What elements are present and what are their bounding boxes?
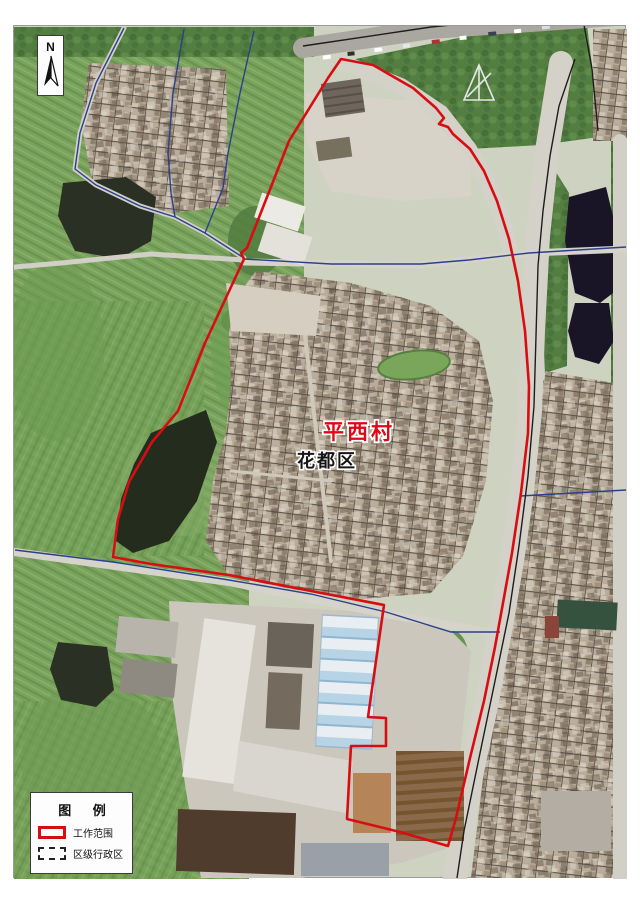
legend-title: 图 例 xyxy=(32,800,132,819)
work-scope-label: 工作范围 xyxy=(73,825,113,840)
legend-item-work-scope: 工作范围 xyxy=(38,825,132,840)
north-label: N xyxy=(38,40,63,54)
district-label: 花都区 xyxy=(297,450,357,471)
district-admin-label: 区级行政区 xyxy=(73,846,123,861)
map-canvas: 平西村 花都区 xyxy=(14,26,627,879)
page: 平西村 花都区 N 图 例 工作范围 区级行政区 xyxy=(0,0,640,904)
north-arrow: N xyxy=(37,35,64,96)
north-arrow-icon xyxy=(41,54,61,90)
legend-item-district-admin: 区级行政区 xyxy=(38,846,132,861)
legend: 图 例 工作范围 区级行政区 xyxy=(30,792,133,874)
village-label: 平西村 xyxy=(323,420,395,444)
satellite-map: 平西村 花都区 xyxy=(13,25,626,878)
district-admin-swatch xyxy=(38,847,66,860)
work-scope-swatch xyxy=(38,826,66,839)
